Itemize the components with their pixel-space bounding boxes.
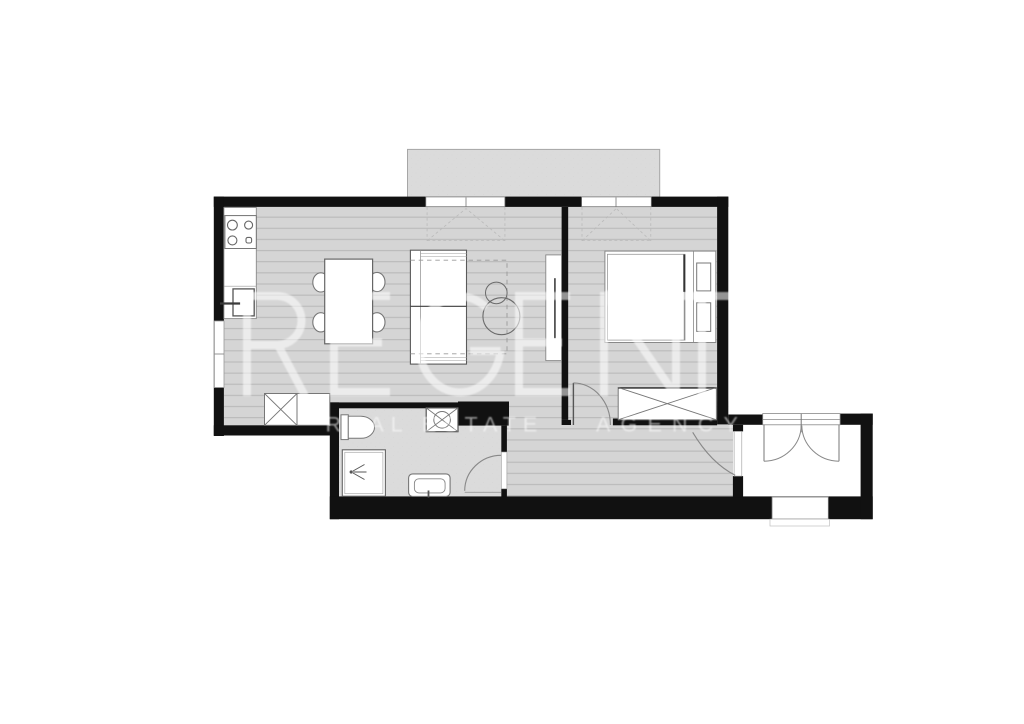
svg-text:AGENCY: AGENCY: [596, 413, 748, 437]
svg-text:REAL ESTATE: REAL ESTATE: [326, 413, 545, 437]
